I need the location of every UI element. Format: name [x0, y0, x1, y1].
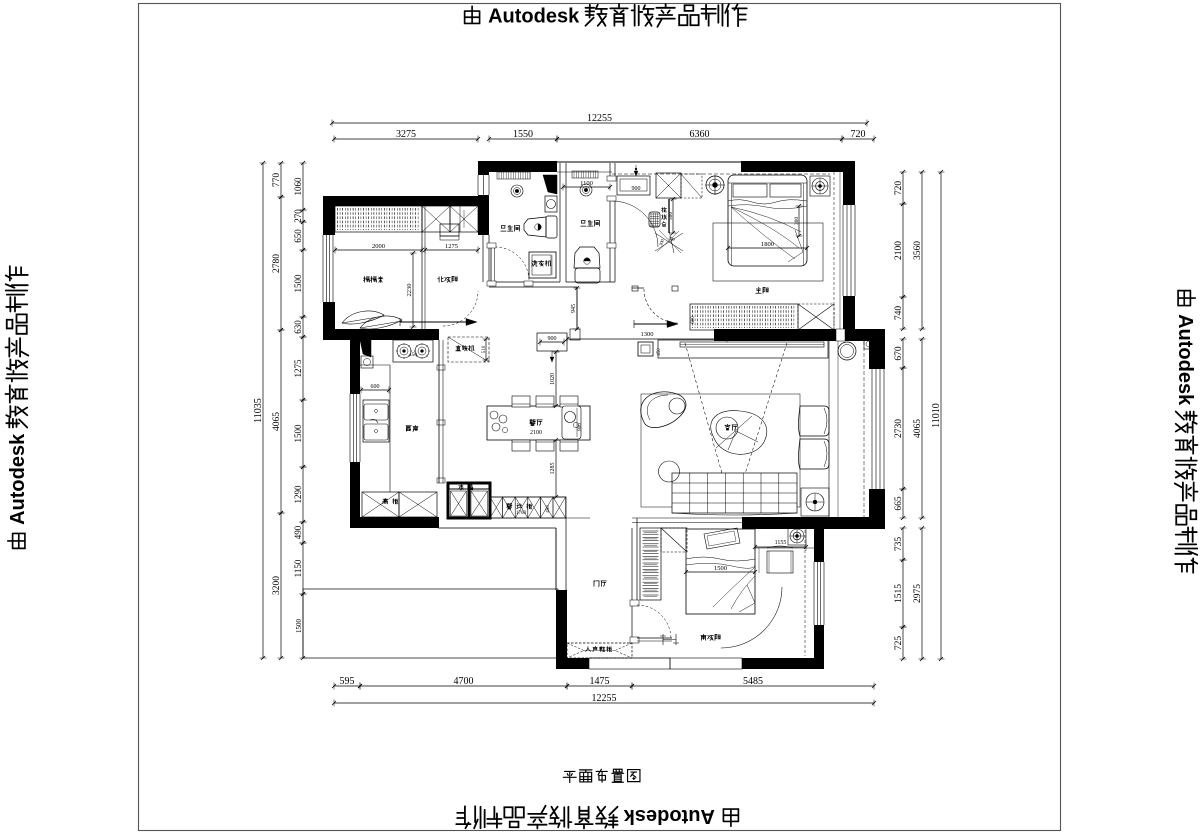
svg-text:1500: 1500	[293, 274, 303, 293]
svg-text:670: 670	[894, 346, 904, 361]
svg-text:1100: 1100	[580, 180, 593, 187]
svg-text:510: 510	[482, 345, 487, 353]
svg-text:900: 900	[548, 336, 557, 342]
svg-text:2000: 2000	[372, 243, 385, 250]
svg-text:500: 500	[668, 212, 674, 221]
svg-text:3560: 3560	[913, 241, 923, 260]
svg-text:2730: 2730	[894, 419, 904, 438]
svg-text:11010: 11010	[931, 403, 942, 428]
svg-text:1290: 1290	[293, 485, 303, 504]
svg-text:2100: 2100	[530, 430, 542, 436]
svg-text:1515: 1515	[894, 584, 904, 603]
svg-text:1760: 1760	[516, 511, 527, 516]
svg-text:800: 800	[578, 423, 583, 431]
svg-text:900: 900	[632, 186, 641, 192]
svg-text:1275: 1275	[445, 243, 458, 250]
svg-text:2975: 2975	[913, 584, 923, 603]
svg-text:945: 945	[571, 304, 577, 313]
svg-text:12255: 12255	[592, 693, 617, 704]
svg-text:450: 450	[546, 505, 551, 513]
svg-text:Autodesk: Autodesk	[7, 433, 29, 525]
svg-text:1500: 1500	[295, 619, 303, 634]
svg-text:1060: 1060	[293, 177, 303, 196]
svg-text:2230: 2230	[406, 284, 413, 297]
svg-text:1020: 1020	[550, 373, 556, 385]
svg-text:650: 650	[293, 229, 303, 243]
svg-text:725: 725	[894, 636, 904, 651]
svg-text:1275: 1275	[293, 359, 303, 378]
svg-text:735: 735	[894, 537, 904, 552]
svg-text:4065: 4065	[913, 419, 923, 438]
svg-text:3275: 3275	[396, 129, 416, 140]
svg-text:630: 630	[293, 320, 303, 334]
svg-text:6360: 6360	[690, 129, 710, 140]
svg-text:665: 665	[894, 496, 904, 511]
svg-text:11035: 11035	[253, 398, 264, 423]
svg-text:3200: 3200	[272, 576, 282, 595]
svg-text:2780: 2780	[272, 254, 282, 273]
svg-text:Autodesk: Autodesk	[1174, 314, 1196, 406]
svg-text:600: 600	[691, 316, 696, 324]
svg-text:450: 450	[409, 352, 418, 358]
svg-text:4065: 4065	[272, 412, 282, 431]
svg-text:270: 270	[293, 209, 303, 223]
svg-text:1155: 1155	[775, 540, 787, 546]
svg-text:1500: 1500	[293, 424, 303, 443]
svg-text:770: 770	[272, 173, 282, 188]
svg-text:490: 490	[293, 525, 303, 539]
svg-text:740: 740	[894, 306, 904, 321]
svg-text:1150: 1150	[293, 559, 303, 577]
svg-text:300: 300	[794, 217, 800, 226]
svg-text:Autodesk: Autodesk	[488, 6, 580, 28]
svg-text:720: 720	[851, 129, 866, 140]
svg-text:595: 595	[340, 676, 355, 687]
svg-text:720: 720	[894, 181, 904, 196]
svg-text:1800: 1800	[761, 241, 774, 248]
svg-text:4700: 4700	[454, 676, 474, 687]
svg-text:1285: 1285	[550, 463, 556, 475]
svg-text:12255: 12255	[587, 113, 612, 124]
svg-text:1300: 1300	[641, 331, 654, 338]
svg-text:1475: 1475	[590, 676, 610, 687]
svg-text:Autodesk: Autodesk	[623, 805, 715, 827]
svg-text:1550: 1550	[513, 129, 533, 140]
svg-text:1500: 1500	[714, 565, 727, 572]
svg-text:2100: 2100	[894, 241, 904, 260]
svg-text:600: 600	[371, 384, 380, 390]
svg-text:450: 450	[657, 348, 662, 356]
svg-text:5485: 5485	[743, 676, 763, 687]
